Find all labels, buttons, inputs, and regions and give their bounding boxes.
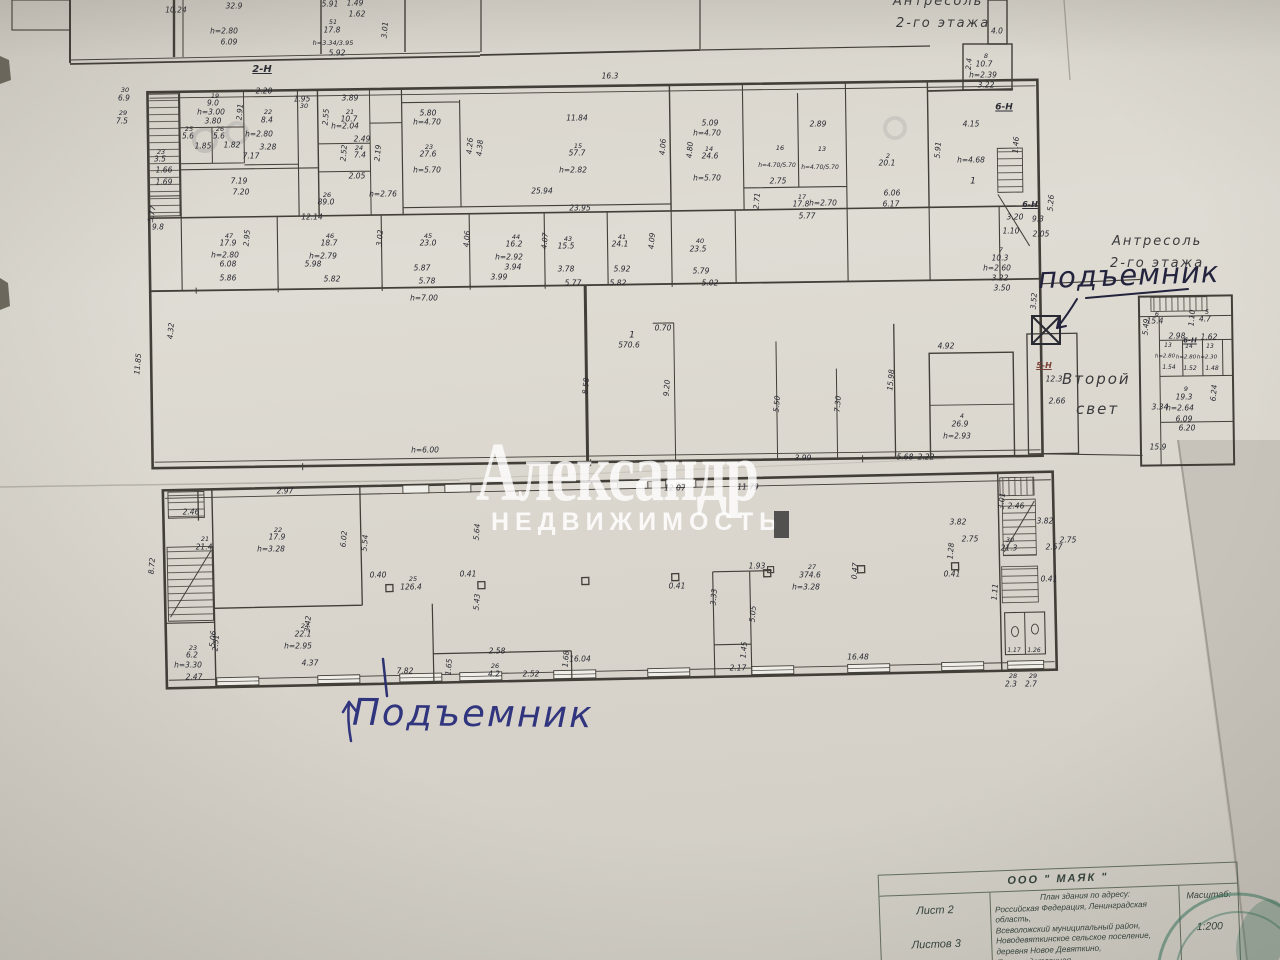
dim-label: 4.2 [488, 670, 500, 678]
dim-label: 5.43 [473, 593, 482, 610]
watermark-agency-type: НЕДВИЖИМОСТЬ [491, 508, 783, 537]
dim-label: 2.17 [730, 664, 747, 672]
dim-label: 2.47 [186, 673, 203, 681]
sheet-cell: Лист 2 Листов 3 [879, 893, 993, 960]
dim-label: 2.52 [523, 670, 540, 678]
floor-plan-photo: 10.2432.9h=2.806.095.911.491.625117.8h=3… [0, 0, 1280, 960]
dim-label: h=2.95 [284, 642, 312, 650]
dim-label: 21.4 [196, 543, 213, 551]
dim-label: 21.3 [1001, 544, 1018, 552]
dim-label: h=3.28 [792, 583, 820, 591]
dim-label: 2.51 [212, 634, 221, 651]
dim-label: 6.02 [340, 530, 349, 547]
dim-label: 2.58 [489, 647, 506, 655]
dim-label: 3.42 [304, 615, 313, 632]
dim-label: 2.46 [1008, 502, 1025, 510]
watermark-logo-block [774, 511, 789, 538]
dim-label: 2.7 [1025, 680, 1037, 688]
second-light-label-line2: свет [1076, 400, 1119, 418]
dim-label: 2.57 [1046, 543, 1063, 551]
dim-label: 2.75 [1060, 536, 1077, 544]
dim-label: 5.54 [361, 534, 370, 551]
sheet-number: Лист 2 [880, 903, 990, 919]
dim-label: 1.26 [1027, 648, 1040, 654]
scale-cell: Масштаб: 1:200 [1179, 884, 1240, 960]
dim-label: 1.11 [991, 583, 1000, 600]
dim-label: 5.05 [749, 605, 758, 622]
dim-label: h=3.30 [174, 661, 202, 669]
dim-label: 5.64 [473, 523, 482, 540]
dim-label: 3.82 [1037, 517, 1054, 525]
mezzanine-right-label-line1: Антресоль [1112, 234, 1202, 249]
dim-label: h=3.28 [257, 545, 285, 553]
mezzanine-top-label-line1: Антресоль [893, 0, 983, 9]
dim-label: 8.72 [148, 557, 157, 574]
dim-label: 4.37 [302, 659, 319, 667]
dim-label: 2.75 [962, 535, 979, 543]
dim-label: 3.01 [998, 492, 1007, 509]
dim-label: 3.33 [710, 588, 719, 605]
scale-label: Масштаб: [1179, 889, 1237, 901]
mezzanine-top-label-line2: 2-го этажа [896, 16, 990, 31]
watermark-agency-name: Александр [476, 424, 758, 521]
dim-label: 1.45 [740, 641, 749, 658]
dim-label: 1.28 [947, 542, 956, 559]
dim-label: 6.2 [186, 651, 198, 659]
dim-label: 0.41 [460, 570, 477, 578]
title-block: ООО " МАЯК " Лист 2 Листов 3 План здания… [878, 862, 1242, 960]
second-light-label-line1: Второй [1062, 370, 1131, 388]
dim-label: 3.82 [950, 518, 967, 526]
dim-label: 374.6 [799, 571, 820, 579]
dim-label: 7.82 [397, 667, 414, 675]
scale-value: 1:200 [1181, 920, 1239, 934]
handwritten-lift-note-lower: Подъемник [352, 691, 594, 737]
dim-label: 1.65 [445, 658, 454, 675]
dim-label: 0.40 [370, 571, 387, 579]
dim-label: 126.4 [400, 583, 421, 591]
dim-label: 16.04 [569, 655, 590, 663]
dim-label: 2.46 [183, 508, 200, 516]
dim-label: 0.41 [1041, 575, 1058, 583]
dim-label: 1.17 [1007, 648, 1020, 654]
dim-label: 16.48 [847, 653, 868, 661]
dim-label: 0.41 [669, 582, 686, 590]
address-cell: План здания по адресу: Российская Федера… [990, 886, 1182, 960]
dim-label: 2.97 [277, 487, 294, 495]
dim-label: 1.93 [749, 562, 766, 570]
dim-label: 0.41 [944, 570, 961, 578]
sheets-total: Листов 3 [881, 937, 991, 953]
handwritten-lift-note-upper: подъемник [1037, 255, 1219, 295]
dim-label: 0.47 [851, 562, 860, 579]
dim-label: 17.9 [269, 533, 286, 541]
dim-label: 2.3 [1005, 680, 1017, 688]
title-block-border: ООО " МАЯК " Лист 2 Листов 3 План здания… [878, 862, 1242, 960]
